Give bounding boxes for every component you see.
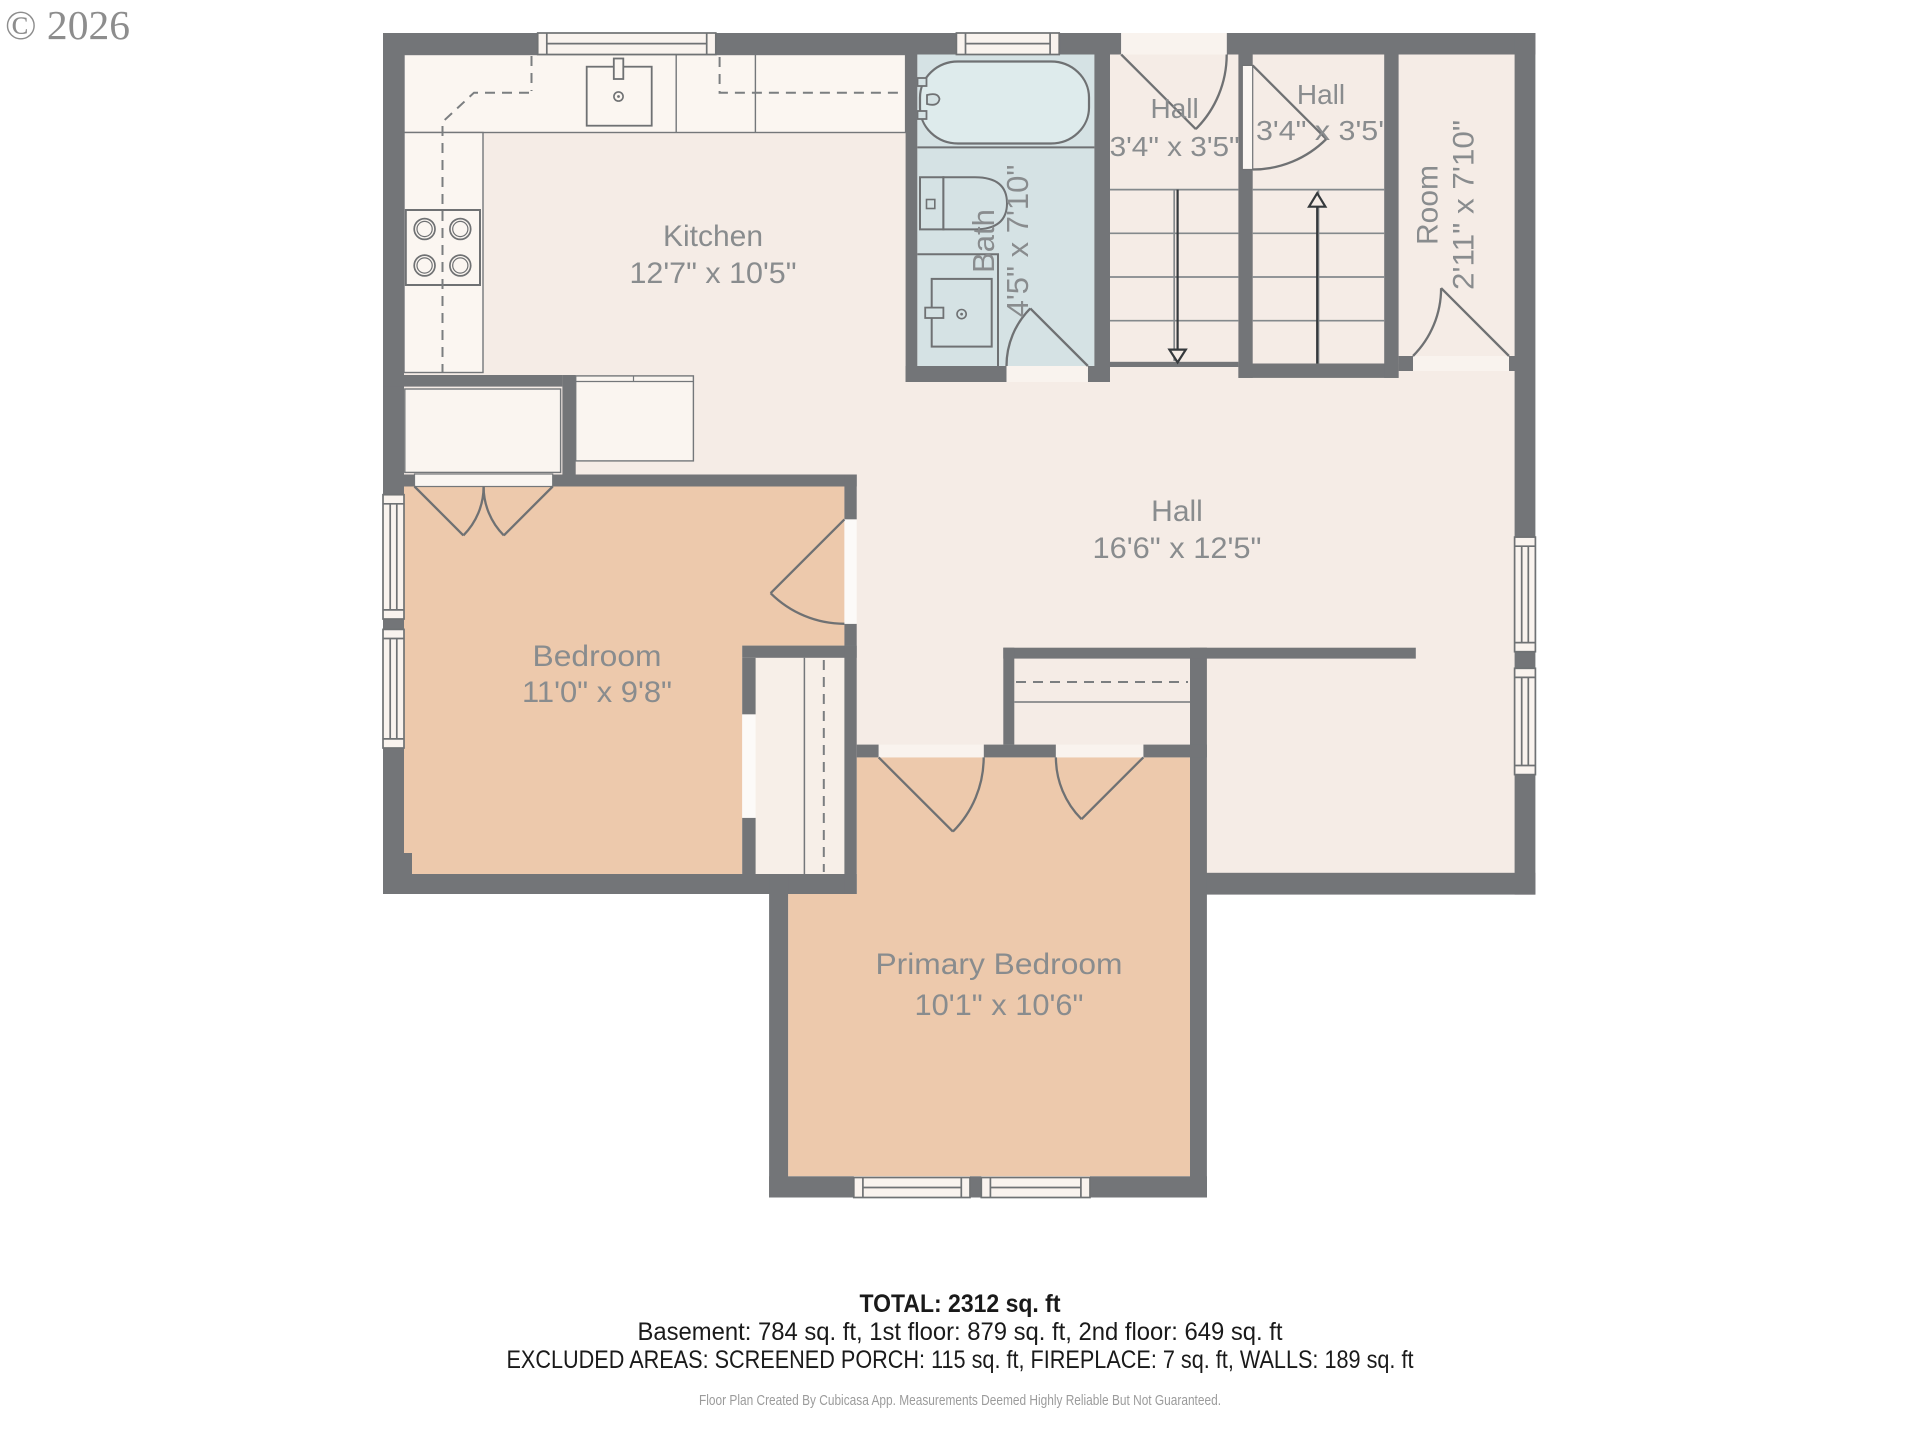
svg-text:© 2026: © 2026 xyxy=(5,2,130,48)
svg-text:Room: Room xyxy=(1412,165,1445,245)
svg-text:Primary Bedroom: Primary Bedroom xyxy=(876,948,1123,981)
svg-text:3'4" x 3'5": 3'4" x 3'5" xyxy=(1110,131,1240,162)
svg-text:EXCLUDED AREAS: SCREENED PORCH: EXCLUDED AREAS: SCREENED PORCH: 115 sq. … xyxy=(507,1346,1414,1374)
svg-text:16'6" x 12'5": 16'6" x 12'5" xyxy=(1093,532,1262,565)
svg-text:Bedroom: Bedroom xyxy=(533,640,662,673)
svg-text:10'1" x 10'6": 10'1" x 10'6" xyxy=(915,989,1084,1022)
svg-text:12'7" x 10'5": 12'7" x 10'5" xyxy=(630,257,797,290)
svg-text:Basement: 784 sq. ft, 1st floo: Basement: 784 sq. ft, 1st floor: 879 sq.… xyxy=(638,1318,1283,1346)
svg-text:11'0" x 9'8": 11'0" x 9'8" xyxy=(522,676,672,709)
svg-text:Hall: Hall xyxy=(1297,79,1345,110)
svg-text:Bath: Bath xyxy=(966,209,1001,273)
svg-text:Hall: Hall xyxy=(1151,495,1203,528)
svg-text:Hall: Hall xyxy=(1150,93,1198,124)
svg-text:2'11" x 7'10": 2'11" x 7'10" xyxy=(1448,120,1481,290)
svg-text:TOTAL: 2312 sq. ft: TOTAL: 2312 sq. ft xyxy=(860,1290,1062,1318)
svg-text:4'5" x 7'10": 4'5" x 7'10" xyxy=(1000,165,1035,318)
svg-text:3'4" x 3'5': 3'4" x 3'5' xyxy=(1256,115,1384,146)
svg-text:Floor Plan Created By Cubicasa: Floor Plan Created By Cubicasa App. Meas… xyxy=(699,1393,1221,1409)
svg-text:Kitchen: Kitchen xyxy=(663,220,763,253)
